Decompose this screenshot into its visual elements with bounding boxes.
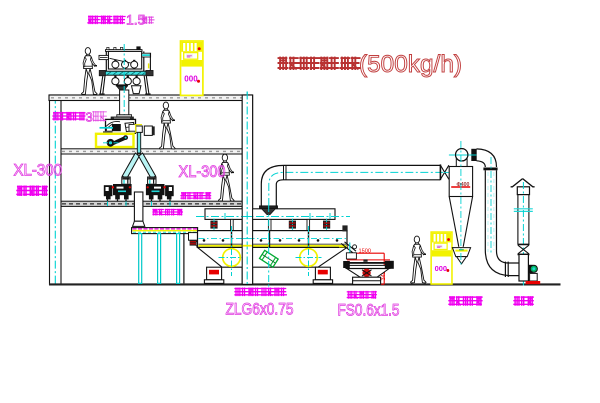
svg-text:Φ400: Φ400 [457, 182, 470, 188]
svg-text:XL-300: XL-300 [14, 161, 63, 180]
svg-text:3: 3 [86, 109, 93, 124]
svg-text:ZLG6x0.75: ZLG6x0.75 [226, 300, 294, 319]
svg-text:(500kg/h): (500kg/h) [359, 51, 462, 78]
svg-text:FS0.6x1.5: FS0.6x1.5 [338, 300, 400, 319]
svg-text:1500: 1500 [359, 249, 371, 255]
svg-text:XL-300: XL-300 [179, 162, 226, 181]
